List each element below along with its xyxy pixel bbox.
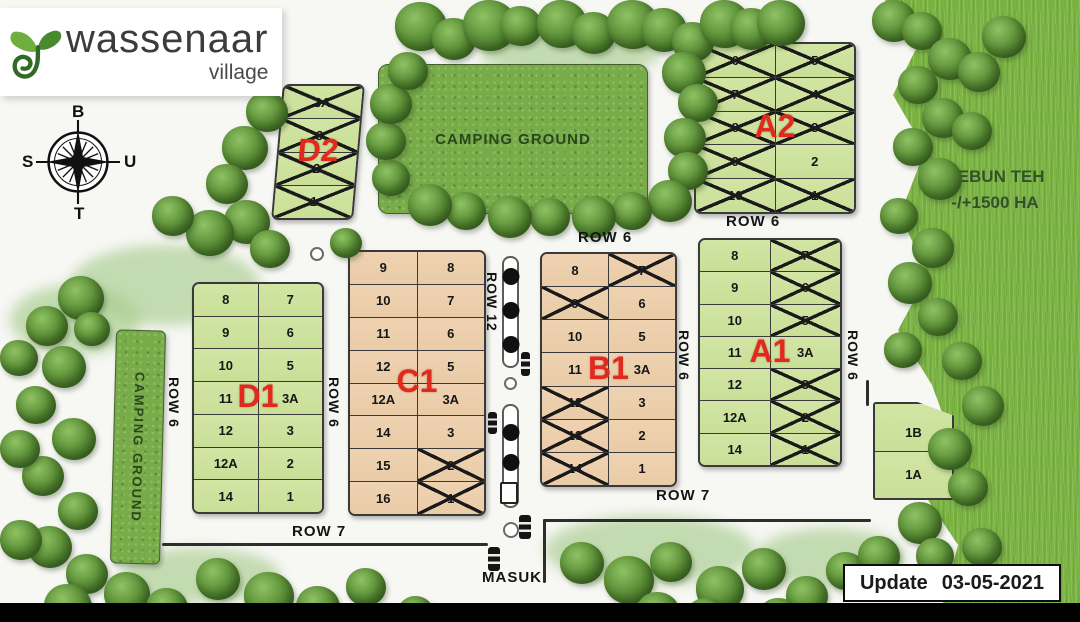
row6-label-a2: ROW 6 [726,213,780,230]
plot-cell: 2 [276,152,357,185]
plot-cell: 7 [609,254,675,286]
plot-cell: 5 [259,348,323,381]
plot-number: 5 [447,359,454,374]
plot-number: 6 [732,53,739,68]
site-plan-map: CAMPING GROUND CAMPING GROUND D2 3A321 A… [0,0,1080,622]
plot-cell: 2 [259,447,323,480]
plot-number: 1A [905,467,922,482]
block-a2: A2 67891054321 [694,42,856,214]
plot-cell: 11 [542,352,608,385]
tree-icon [388,52,428,90]
block-d1: D1 8910111212A147653A321 [192,282,324,514]
plot-cell: 1 [771,433,841,465]
camping-ground-left: CAMPING GROUND [110,329,166,564]
plot-number: 7 [802,248,809,263]
camping-ground-top-label: CAMPING GROUND [435,131,591,148]
row6-label-d1-left: ROW 6 [166,377,182,428]
logo: wassenaar village [0,8,282,96]
plot-cell: 6 [771,271,841,303]
logo-title: wassenaar [66,19,268,59]
tree-icon [246,92,288,132]
plot-number: 7 [638,263,645,278]
tree-icon [372,160,410,196]
tree-icon [928,428,972,470]
tree-icon [880,198,918,234]
plot-cell: 9 [194,316,258,349]
tree-icon [982,16,1026,58]
plot-number: 14 [219,489,233,504]
road-post-icon [521,352,530,376]
plot-number: 11 [728,345,742,360]
plot-cell: 1 [609,452,675,485]
plot-cell: 2 [418,448,485,481]
plot-cell: 4 [776,77,855,111]
plot-number: 2 [312,161,321,176]
update-date: 03-05-2021 [942,572,1044,595]
plot-cell: 1 [776,178,855,212]
plot-number: 5 [802,313,809,328]
tree-icon [446,192,486,230]
plot-cell: 9 [542,286,608,319]
plot-number: 4 [811,87,818,102]
plot-cell: 3 [259,414,323,447]
plot-number: 2 [802,410,809,425]
plot-number: 10 [728,313,742,328]
sprout-icon [8,17,66,87]
curb-line [866,380,869,406]
median-strip [502,256,519,368]
plot-number: 8 [571,263,578,278]
compass-west-label: S [22,152,33,172]
plot-cell: 3 [609,386,675,419]
tree-icon [206,164,248,204]
road-post-icon [488,412,497,434]
plot-number: 3A [313,95,331,110]
plot-number: 1 [811,188,818,203]
tree-icon [952,112,992,150]
median-endcap [500,482,518,504]
plot-cell: 6 [609,286,675,319]
plot-cell: 1 [418,481,485,514]
update-box: Update 03-05-2021 [843,564,1061,602]
masuk-label: MASUK [482,569,542,586]
plot-number: 3A [797,345,814,360]
roundabout-icon [310,247,324,261]
plot-cell: 1 [273,185,354,218]
update-label: Update [860,572,928,595]
compass-north-label: B [72,102,84,122]
median-tree-icon [502,302,519,319]
tree-icon [500,6,542,46]
plot-number: 10 [568,329,582,344]
plot-cell: 12A [194,447,258,480]
plot-number: 8 [222,292,229,307]
tree-icon [370,84,412,124]
plot-cell: 3A [771,336,841,368]
plot-number: 7 [287,292,294,307]
tree-icon [918,298,958,336]
plot-number: 1 [447,491,454,506]
tree-icon [918,158,962,200]
tree-icon [742,548,786,590]
plot-number: 12 [376,359,390,374]
plot-cell: 8 [194,284,258,316]
plot-number: 11 [568,362,582,377]
plot-cell: 5 [771,304,841,336]
plot-number: 12 [219,423,233,438]
tree-icon [884,332,922,368]
plot-number: 16 [376,491,390,506]
plot-cell: 12 [700,368,770,400]
plot-number: 12A [371,392,395,407]
plot-number: 6 [638,296,645,311]
plot-number: 15 [376,458,390,473]
plot-number: 6 [447,326,454,341]
plot-number: 3 [802,377,809,392]
compass-east-label: U [124,152,136,172]
plot-cell: 12 [542,386,608,419]
plot-cell: 3 [279,118,360,151]
tree-icon [530,198,570,236]
plot-cell: 2 [771,400,841,432]
compass-rose-icon: B U S T [28,104,128,222]
tree-icon [58,492,98,530]
plot-cell: 3 [771,368,841,400]
plot-cell: 9 [350,252,417,284]
plot-number: 1 [287,489,294,504]
median-tree-icon [502,268,519,285]
tree-icon [912,228,954,268]
plot-number: 2 [287,456,294,471]
plot-cell: 8 [542,254,608,286]
plot-cell: 15 [350,448,417,481]
plot-cell: 11 [350,317,417,350]
plot-cell: 12A [350,383,417,416]
plot-number: 13 [568,428,582,443]
plot-cell: 10 [696,178,775,212]
plot-number: 9 [571,296,578,311]
plot-cell: 7 [771,240,841,271]
plot-number: 2 [447,458,454,473]
curb-line [543,519,546,583]
entrance-gate-icon [519,515,531,539]
plot-number: 6 [287,325,294,340]
plot-number: 12 [568,395,582,410]
plot-number: 1 [309,194,318,209]
plot-number: 3 [287,423,294,438]
plot-cell: 11 [194,381,258,414]
plot-number: 10 [219,358,233,373]
plot-cell: 1 [259,479,323,512]
tree-icon [560,542,604,584]
camping-ground-left-label: CAMPING GROUND [129,371,148,522]
plot-number: 8 [732,120,739,135]
plot-number: 7 [447,293,454,308]
plot-cell: 8 [418,252,485,284]
plot-cell: 12 [350,350,417,383]
tree-icon [962,528,1002,566]
tree-icon [74,312,110,346]
plot-cell: 9 [700,271,770,303]
median-tree-icon [502,454,519,471]
tree-icon [888,262,932,304]
plot-number: 8 [447,260,454,275]
plot-cell: 11 [700,336,770,368]
tree-icon [0,520,42,560]
plot-number: 3A [442,392,459,407]
block-b1: B1 8910111213147653A321 [540,252,677,487]
plot-number: 1 [638,461,645,476]
tree-icon [42,346,86,388]
plot-cell: 14 [350,415,417,448]
plot-cell: 14 [194,479,258,512]
plot-cell: 10 [350,284,417,317]
roundabout-icon [504,377,517,390]
plot-number: 3 [811,120,818,135]
plot-number: 5 [638,329,645,344]
tree-icon [366,122,406,160]
plot-number: 1 [802,442,809,457]
plot-cell: 5 [776,44,855,77]
plot-cell: 6 [418,317,485,350]
tree-icon [958,52,1000,92]
plot-cell: 2 [609,419,675,452]
plot-cell: 3 [418,415,485,448]
tree-icon [757,0,805,46]
plot-cell: 3A [259,381,323,414]
tree-icon [650,542,692,582]
logo-subtitle: village [66,61,268,85]
block-a1: A1 8910111212A147653A321 [698,238,842,467]
plot-cell: 12A [700,400,770,432]
plot-cell: 14 [542,452,608,485]
block-c1: C1 910111212A14151687653A321 [348,250,486,516]
tree-icon [942,342,982,380]
plot-cell: 7 [418,284,485,317]
tree-icon [26,306,68,346]
compass-south-label: T [74,204,84,224]
plot-number: 3A [282,391,299,406]
tree-icon [678,84,718,122]
roundabout-icon [503,522,519,538]
plot-cell: 6 [259,316,323,349]
tree-icon [52,418,96,460]
tree-icon [346,568,386,606]
plot-cell: 10 [194,348,258,381]
tree-icon [0,340,38,376]
plot-cell: 13 [542,419,608,452]
plot-number: 3 [315,128,324,143]
median-tree-icon [502,424,519,441]
plot-cell: 8 [700,240,770,271]
plot-number: 14 [728,442,742,457]
curb-line [543,519,871,522]
row6-label-d1-right: ROW 6 [326,377,342,428]
row6-label-a1-right: ROW 6 [845,330,861,381]
plot-cell: 5 [609,319,675,352]
plot-number: 6 [802,280,809,295]
tree-icon [612,192,652,230]
curb-line [162,543,488,546]
tree-icon [948,468,988,506]
plot-number: 11 [219,391,233,406]
plot-cell: 10 [700,304,770,336]
plot-number: 10 [376,293,390,308]
tree-icon [16,386,56,424]
plot-number: 9 [732,154,739,169]
tree-icon [0,430,40,468]
median-tree-icon [502,336,519,353]
tree-icon [488,196,532,238]
plot-number: 5 [287,358,294,373]
tree-icon [330,228,362,258]
plot-number: 9 [731,280,738,295]
plot-number: 2 [811,154,818,169]
plot-number: 14 [568,461,582,476]
plot-number: 8 [731,248,738,263]
row12-label: ROW 12 [484,272,500,332]
plot-cell: 3 [776,111,855,145]
tree-icon [408,184,452,226]
plot-number: 12A [723,410,747,425]
plot-cell: 2 [776,144,855,178]
plot-cell: 16 [350,481,417,514]
plot-cell: 3A [282,86,363,118]
row6-label-b1-top: ROW 6 [578,229,632,246]
tree-icon [962,386,1004,426]
plot-number: 7 [732,87,739,102]
tree-icon [250,230,290,268]
plot-number: 9 [222,325,229,340]
plot-number: 12 [728,377,742,392]
plot-number: 2 [638,428,645,443]
plot-number: 3 [638,395,645,410]
tree-icon [648,180,692,222]
plot-number: 11 [376,326,390,341]
plot-cell: 12 [194,414,258,447]
row7-label-left: ROW 7 [292,523,346,540]
row6-label-b1-right: ROW 6 [676,330,692,381]
bottom-black-bar [0,603,1080,622]
tree-icon [152,196,194,236]
plot-cell: 3A [418,383,485,416]
tree-icon [898,66,938,104]
entrance-gate-icon [488,547,500,571]
row7-label-right: ROW 7 [656,487,710,504]
plot-number: 10 [728,188,742,203]
plot-cell: 3A [609,352,675,385]
plot-cell: 10 [542,319,608,352]
plot-cell: 14 [700,433,770,465]
tree-icon [196,558,240,600]
plot-number: 9 [380,260,387,275]
plot-number: 3A [634,362,651,377]
plot-cell: 5 [418,350,485,383]
plot-cell: 7 [259,284,323,316]
plot-number: 5 [811,53,818,68]
plot-number: 1B [905,425,922,440]
plot-number: 14 [376,425,390,440]
plot-number: 3 [447,425,454,440]
plot-number: 12A [214,456,238,471]
